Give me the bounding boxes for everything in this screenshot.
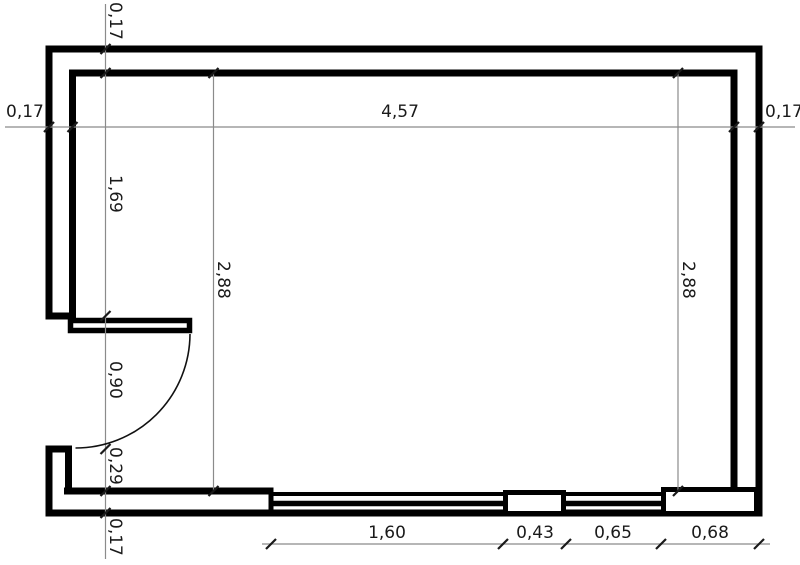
dim-label-corner-segment: 0,68 [670,523,750,543]
dim-label-door-opening: 0,90 [105,361,125,399]
door-leaf [71,321,190,331]
dim-label-interior-width: 4,57 [360,102,440,122]
window-pier [506,493,564,514]
dim-label-left-segment: 1,69 [105,175,125,213]
dim-label-door-to-wall: 0,29 [105,447,125,485]
dim-label-interior-depth-right: 2,88 [678,261,698,299]
floor-plan: 0,17 4,57 0,17 1,60 0,43 0,65 0,68 0,17 … [0,0,800,565]
dim-label-pier-width: 0,43 [495,523,575,543]
dim-label-wall-right: 0,17 [765,102,800,122]
dim-label-interior-depth-left: 2,88 [213,261,233,299]
window-1 [271,494,503,504]
window-2 [566,494,661,504]
door-swing-arc [76,334,191,448]
dim-label-wall-top: 0,17 [105,2,125,40]
dim-label-window2-width: 0,65 [573,523,653,543]
dim-label-window1-width: 1,60 [347,523,427,543]
dim-label-wall-left: 0,17 [6,102,44,122]
inner-wall [73,73,735,489]
dim-label-wall-bottom: 0,17 [105,518,125,556]
